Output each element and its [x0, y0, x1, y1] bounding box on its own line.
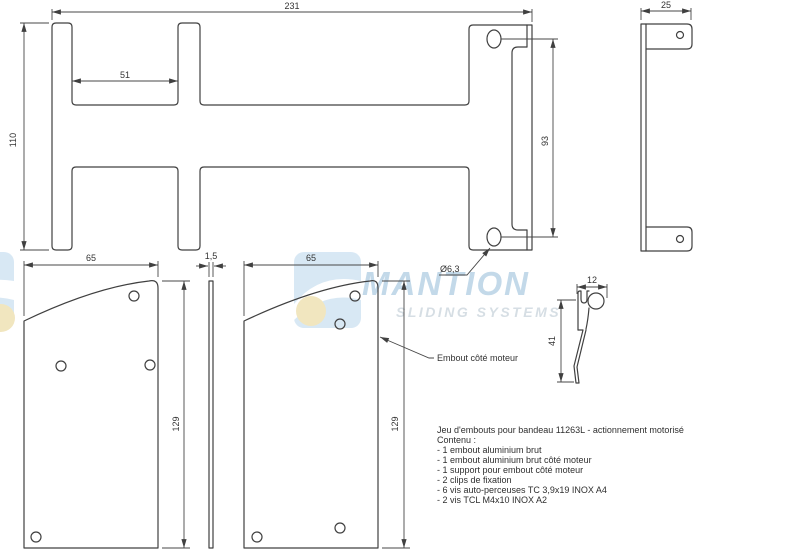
notes-line: - 6 vis auto-perceuses TC 3,9x19 INOX A4: [437, 485, 607, 495]
dim-label-endcap-plain-width: 65: [86, 253, 96, 263]
ext-lines: [209, 262, 213, 277]
hole: [129, 291, 139, 301]
dim-label-support-height: 110: [8, 133, 18, 147]
endcap-plain-view: [24, 281, 158, 548]
notes-line: - 2 vis TCL M4x10 INOX A2: [437, 495, 547, 505]
hole: [56, 361, 66, 371]
support-hole-bottom: [487, 228, 501, 246]
side-tab-bottom: [646, 227, 692, 251]
notes-line: - 1 support pour embout côté moteur: [437, 465, 583, 475]
dim-label-hole-spacing: 93: [540, 136, 550, 146]
hole: [335, 523, 345, 533]
side-hole-bottom: [677, 236, 684, 243]
endcap-plain-outline: [24, 281, 158, 548]
dim-label-support-width: 231: [284, 1, 299, 11]
notes-line: - 1 embout aluminium brut côté moteur: [437, 455, 592, 465]
watermark-tagline: SLIDING SYSTEMS: [396, 304, 561, 320]
technical-drawing: MANTION SLIDING SYSTEMS: [0, 0, 800, 556]
notes-block: Jeu d'embouts pour bandeau 11263L - acti…: [437, 425, 684, 505]
dim-label-strip-thickness: 1,5: [205, 251, 218, 261]
clip-profile-view: [574, 291, 604, 383]
spacer-strip: [209, 281, 213, 548]
support-bend-contour: [512, 47, 527, 230]
dim-label-support-slot: 51: [120, 70, 130, 80]
dim-label-hole-dia: Ø6,3: [440, 264, 460, 274]
dim-label-side-width: 25: [661, 0, 671, 10]
ext-lines: [162, 281, 190, 548]
notes-title: Jeu d'embouts pour bandeau 11263L - acti…: [437, 425, 684, 435]
notes-line: - 2 clips de fixation: [437, 475, 512, 485]
hole: [252, 532, 262, 542]
dimension-labels: 231 110 51 93 Ø6,3 25 65 129 1,5 65 129 …: [8, 0, 671, 432]
clip-leg: [574, 330, 586, 383]
clip-bead: [588, 293, 604, 309]
side-tab-top: [646, 24, 692, 49]
side-hole-top: [677, 32, 684, 39]
logo-sun: [296, 296, 326, 326]
ext-lines: [24, 261, 158, 316]
hole: [31, 532, 41, 542]
hole: [145, 360, 155, 370]
spacer-strip-view: [209, 281, 213, 548]
notes-line: - 1 embout aluminium brut: [437, 445, 542, 455]
dim-label-endcap-motor-height: 129: [390, 416, 400, 431]
mantion-logo-watermark-partial: [0, 252, 15, 332]
support-outline: [52, 23, 532, 250]
leader-line: [380, 337, 434, 358]
mantion-logo-watermark: [294, 252, 361, 328]
technical-drawing-page: MANTION SLIDING SYSTEMS: [0, 0, 800, 556]
support-hole-top: [487, 30, 501, 48]
dim-label-endcap-plain-height: 129: [171, 416, 181, 431]
ext-lines: [382, 281, 410, 548]
notes-line: Contenu :: [437, 435, 476, 445]
clip-channel: [586, 308, 589, 329]
side-plate: [641, 24, 646, 251]
leader-label-motor-endcap: Embout côté moteur: [437, 353, 518, 363]
dim-label-clip-width: 12: [587, 275, 597, 285]
dim-label-clip-height: 41: [547, 336, 557, 346]
dim-label-endcap-motor-width: 65: [306, 253, 316, 263]
support-front-view: [52, 23, 532, 250]
support-side-view: [641, 24, 692, 251]
